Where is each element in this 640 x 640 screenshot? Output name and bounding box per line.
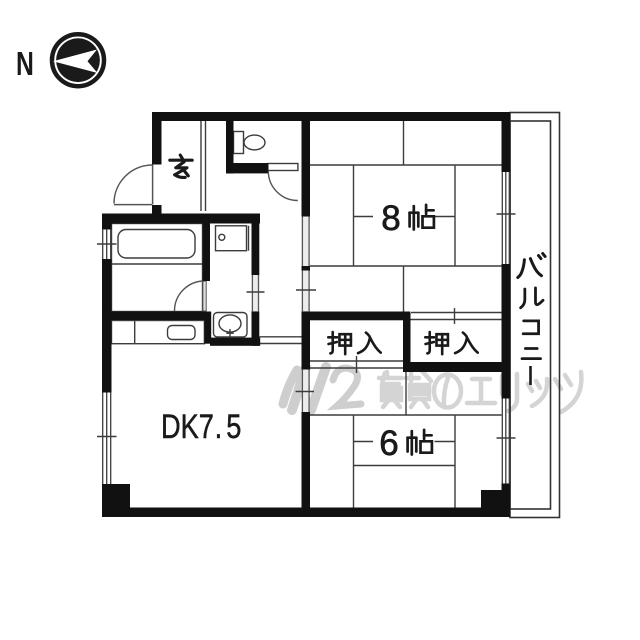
svg-text:6: 6 bbox=[379, 424, 398, 463]
svg-text:DK7.5: DK7.5 bbox=[161, 407, 241, 446]
svg-text:N: N bbox=[16, 47, 34, 83]
svg-text:8: 8 bbox=[381, 199, 400, 238]
